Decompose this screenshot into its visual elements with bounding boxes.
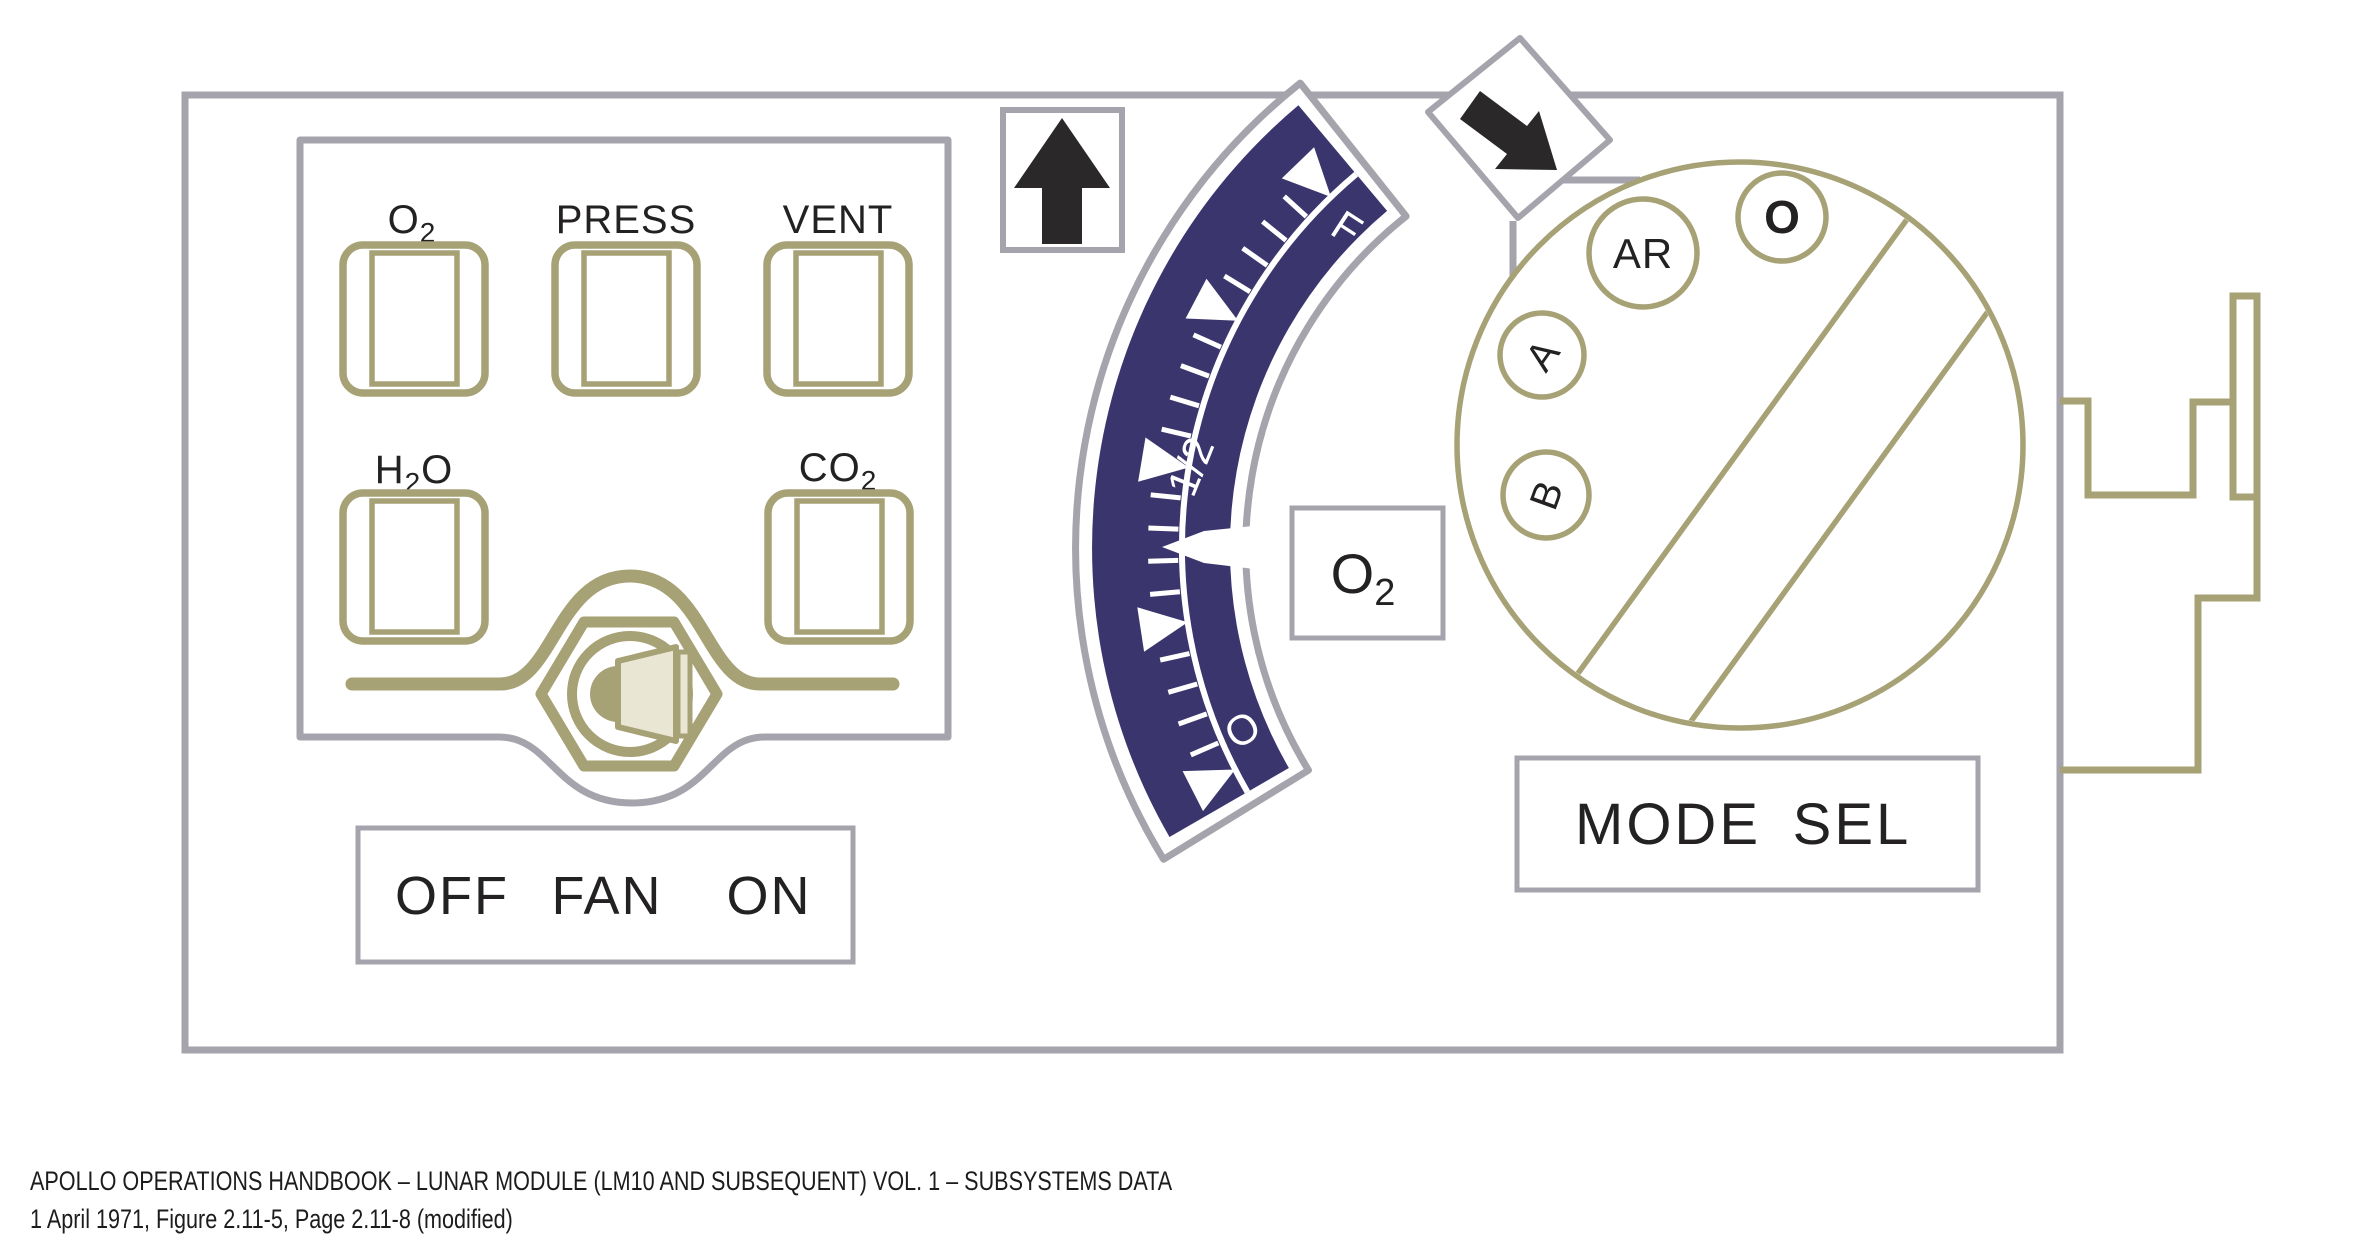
indicator-press-label: PRESS — [556, 198, 697, 242]
mode-position-o-label: O — [1764, 191, 1800, 243]
caption-line-2: 1 April 1971, Figure 2.11-5, Page 2.11-8… — [30, 1205, 513, 1235]
fan-switch-fan-label: FAN — [551, 866, 662, 926]
indicator-h2o-flag — [372, 501, 457, 632]
indicator-vent-label: VENT — [783, 198, 894, 242]
fan-switch-placard: OFF FAN ON — [358, 828, 853, 962]
indicator-co2-flag — [797, 501, 882, 632]
figure-page: O2 PRESS VENT H2O CO2 OFF FAN ON — [0, 0, 2362, 1241]
caption-line-1: APOLLO OPERATIONS HANDBOOK – LUNAR MODUL… — [30, 1167, 1173, 1197]
up-arrow-callout — [1003, 110, 1122, 250]
indicator-press-flag — [584, 253, 669, 384]
panel-diagram: O2 PRESS VENT H2O CO2 OFF FAN ON — [0, 0, 2362, 1241]
knob-handle-cap — [678, 652, 690, 736]
right-connector-upper — [2060, 401, 2233, 495]
gauge-minor-tick — [1150, 592, 1180, 595]
knob-handle-wedge — [618, 647, 676, 741]
fan-switch-off-label: OFF — [395, 866, 509, 926]
gauge-minor-tick — [1148, 560, 1178, 561]
indicator-press: PRESS — [555, 198, 697, 393]
indicator-o2-flag — [372, 253, 457, 384]
gauge-minor-tick — [1148, 528, 1178, 529]
mode-sel-label-word1: MODE — [1575, 792, 1761, 857]
right-connector-lower — [2060, 497, 2257, 770]
gauge-minor-tick — [1151, 495, 1181, 498]
mode-sel-placard: MODE SEL — [1517, 758, 1978, 890]
fan-knob — [541, 622, 717, 766]
indicator-vent: VENT — [767, 198, 909, 393]
right-connector-tab — [2233, 296, 2257, 497]
gauge-parameter-placard: O2 — [1292, 508, 1443, 638]
mode-position-ar-label: AR — [1613, 230, 1673, 277]
mode-sel-label-word2: SEL — [1793, 792, 1912, 857]
indicator-vent-flag — [796, 253, 881, 384]
fan-switch-on-label: ON — [727, 866, 812, 926]
mode-selector-knob — [1457, 162, 2023, 728]
